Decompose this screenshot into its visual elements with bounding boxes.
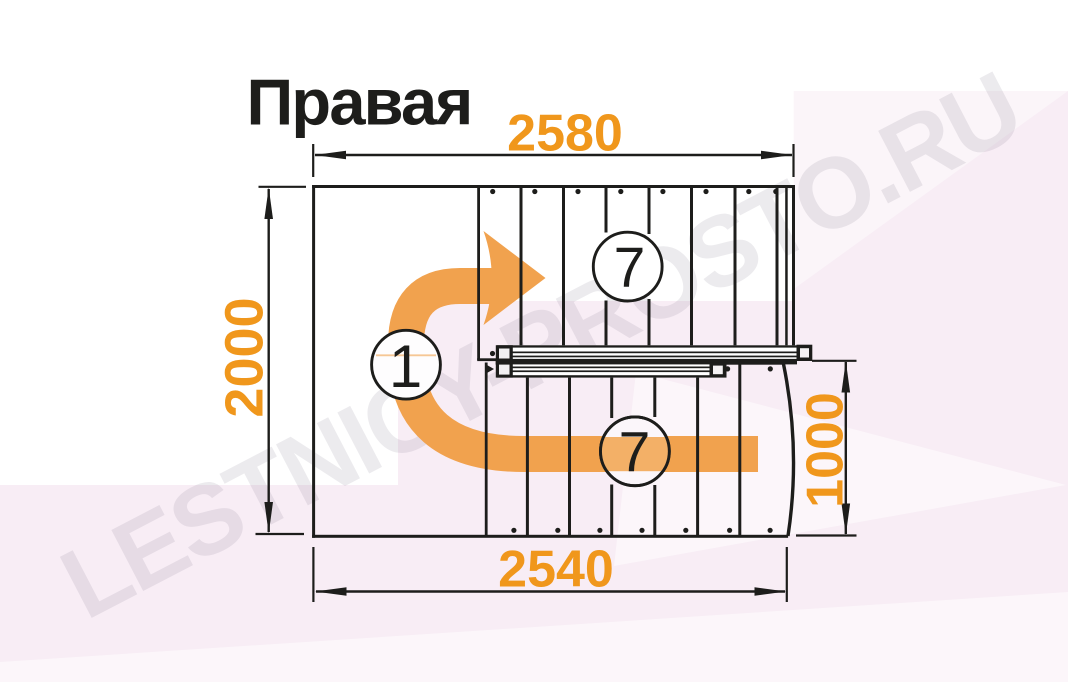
svg-text:7: 7 <box>619 421 651 485</box>
svg-text:2000: 2000 <box>215 297 275 417</box>
svg-text:Правая: Правая <box>247 66 472 139</box>
svg-text:2580: 2580 <box>507 105 623 163</box>
svg-text:1000: 1000 <box>797 392 855 508</box>
svg-text:7: 7 <box>614 236 646 300</box>
svg-text:2540: 2540 <box>498 541 614 599</box>
svg-text:1: 1 <box>389 333 422 400</box>
